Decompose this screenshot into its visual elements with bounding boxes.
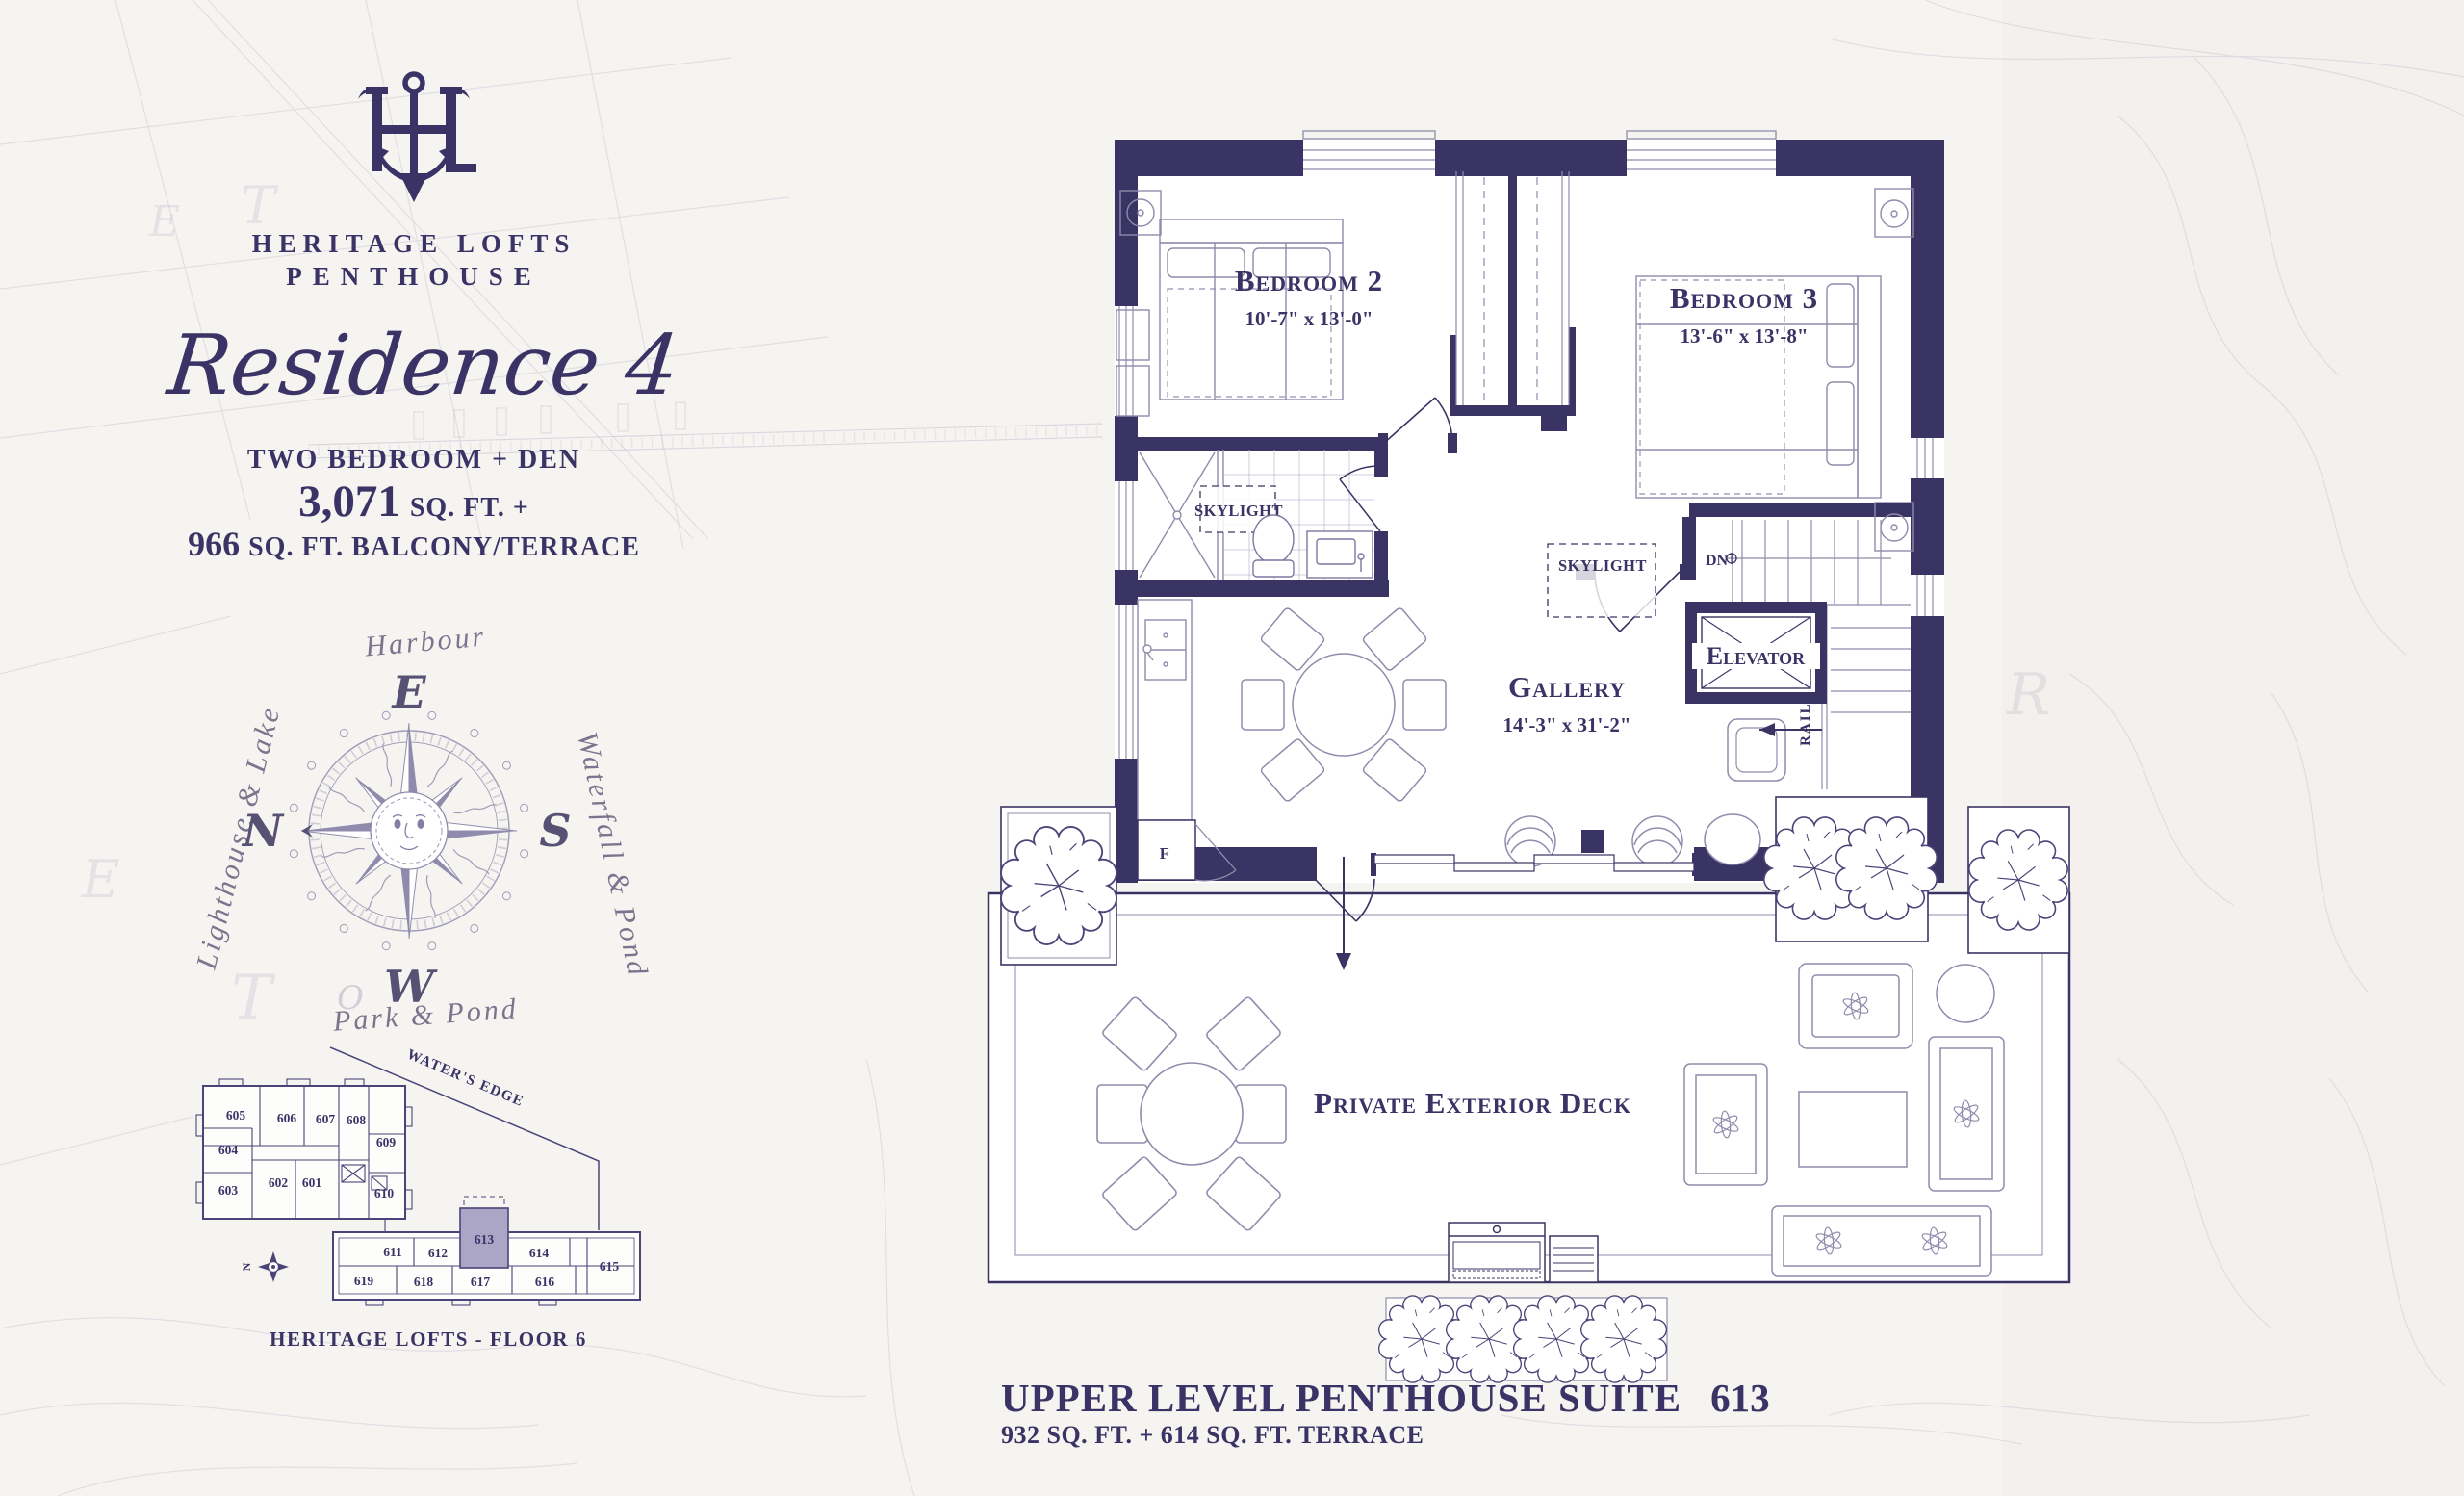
private-deck: Private Exterior Deck xyxy=(988,893,2069,1282)
compass-cardinal-w: W xyxy=(384,961,438,1013)
unit-number: 601 xyxy=(302,1175,322,1190)
residence-balcony: 966 SQ. FT. BALCONY/TERRACE xyxy=(144,524,683,564)
vanity-sink-icon xyxy=(1307,531,1373,578)
unit-number: 612 xyxy=(428,1246,449,1260)
footer-title: UPPER LEVEL PENTHOUSE SUITE xyxy=(1001,1375,1681,1421)
keyplan-compass-icon xyxy=(258,1251,289,1282)
key-plan: WATER'S EDGE xyxy=(183,1040,674,1367)
unit-number: 609 xyxy=(376,1135,397,1149)
unit-number-highlighted: 613 xyxy=(475,1232,495,1247)
anchor-monogram-icon xyxy=(358,74,476,202)
kitchen-counter xyxy=(1138,600,1192,820)
residence-type: TWO BEDROOM + DEN xyxy=(164,445,664,476)
balcony-value: 966 xyxy=(188,524,240,564)
planter-right xyxy=(1968,807,2069,953)
unit-number: 610 xyxy=(374,1186,395,1200)
hall-skylight-box xyxy=(1548,544,1655,617)
hall-skylight-label: SKYLIGHT xyxy=(1558,556,1647,575)
gallery-label: Gallery xyxy=(1508,670,1626,704)
unit-number: 615 xyxy=(600,1259,620,1274)
dn-label: DN xyxy=(1706,553,1729,569)
deck-label: Private Exterior Deck xyxy=(1314,1086,1631,1120)
unit-number: 617 xyxy=(471,1275,491,1289)
unit-number: 605 xyxy=(226,1108,246,1122)
area-value: 3,071 xyxy=(298,476,400,528)
unit-number: 614 xyxy=(529,1246,550,1260)
floor-plan: Private Exterior Deck xyxy=(962,77,2127,1415)
keyplan-north-label: N xyxy=(240,1262,253,1271)
residence-area: 3,071 SQ. FT. + xyxy=(164,476,664,528)
brochure-page: T E T E R O HERITAGE LOFTS PENTHOUSE Res… xyxy=(0,0,2464,1496)
map-label-harbour: Harbour xyxy=(363,621,487,663)
unit-number: 604 xyxy=(218,1143,239,1157)
bedroom2-label: Bedroom 2 xyxy=(1235,264,1383,297)
heritage-lofts-logo xyxy=(318,56,510,229)
compass-graphic: E S W N xyxy=(241,666,572,1013)
unit-number: 606 xyxy=(277,1111,297,1125)
footer-title-row: UPPER LEVEL PENTHOUSE SUITE 613 xyxy=(1001,1375,1770,1421)
planter-left xyxy=(1001,807,1116,965)
unit-number: 616 xyxy=(535,1275,555,1289)
unit-number: 608 xyxy=(346,1113,367,1127)
bedroom3-label: Bedroom 3 xyxy=(1670,281,1818,315)
toilet-icon xyxy=(1253,515,1294,577)
street-label: WATER'S EDGE xyxy=(404,1046,526,1110)
unit-number: 611 xyxy=(383,1245,402,1259)
unit-number: 603 xyxy=(218,1183,239,1198)
fridge-label: F xyxy=(1160,844,1170,863)
gallery-dims: 14'-3" x 31'-2" xyxy=(1503,713,1631,736)
map-letter: T xyxy=(241,175,279,236)
planter-double xyxy=(1764,797,1937,941)
compass-cardinal-e: E xyxy=(390,666,426,718)
planter-bottom-row xyxy=(1379,1296,1667,1382)
compass-rose: Harbour Lighthouse & Lake Waterfall & Po… xyxy=(111,616,707,1059)
residence-title: Residence 4 xyxy=(101,318,747,414)
area-suffix: SQ. FT. + xyxy=(410,493,529,524)
footer-suite-number: 613 xyxy=(1710,1375,1770,1421)
bedroom3-dims: 13'-6" x 13'-8" xyxy=(1681,324,1809,348)
elevator: Elevator xyxy=(1685,602,1827,704)
unit-number: 607 xyxy=(316,1112,336,1126)
footer-subtitle: 932 SQ. FT. + 614 SQ. FT. TERRACE xyxy=(1001,1421,1424,1450)
keyplan-caption: HERITAGE LOFTS - FLOOR 6 xyxy=(269,1328,587,1351)
brand-line1: HERITAGE LOFTS xyxy=(164,229,664,259)
brand-line2: PENTHOUSE xyxy=(164,262,664,292)
unit-number: 602 xyxy=(269,1175,289,1190)
unit-number: 618 xyxy=(414,1275,434,1289)
compass-cardinal-n: N xyxy=(241,805,285,857)
bedroom2-dims: 10'-7" x 13'-0" xyxy=(1245,307,1373,330)
compass-sun-disc xyxy=(371,792,448,869)
elevator-label: Elevator xyxy=(1707,642,1806,670)
unit-number: 619 xyxy=(354,1274,374,1288)
balcony-suffix: SQ. FT. BALCONY/TERRACE xyxy=(248,532,640,563)
map-label-waterfall-pond: Waterfall & Pond xyxy=(571,729,654,980)
compass-cardinal-s: S xyxy=(539,805,571,857)
